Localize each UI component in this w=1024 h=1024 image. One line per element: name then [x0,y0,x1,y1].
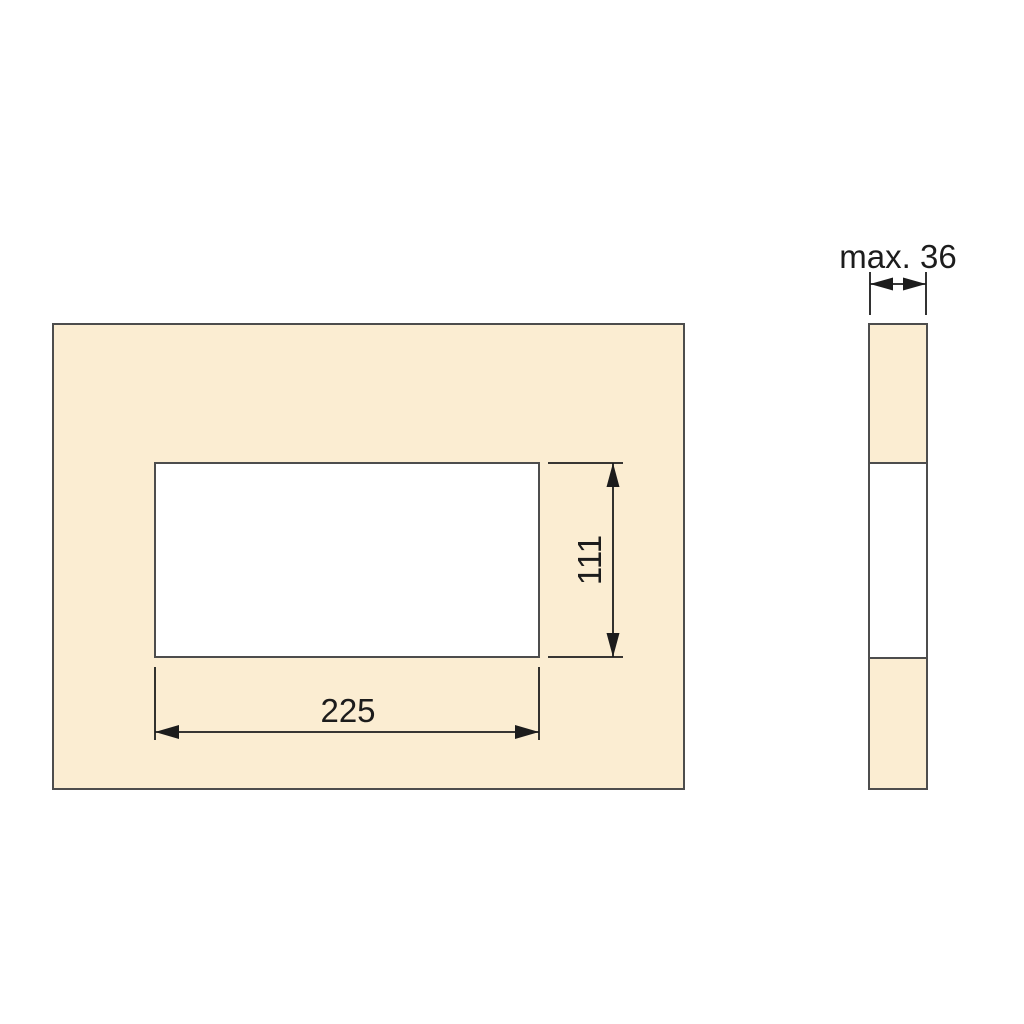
front-panel-cutout [155,463,539,657]
thickness-dimension-label: max. 36 [839,238,956,275]
arrow-right-small-icon [903,278,926,291]
dimension-drawing-svg: 225 111 max. 36 [0,0,1024,1024]
width-dimension-label: 225 [320,692,375,729]
side-panel-cutout-section [869,463,927,658]
arrow-left-small-icon [870,278,893,291]
height-dimension-label: 111 [571,535,608,585]
technical-drawing: 225 111 max. 36 [0,0,1024,1024]
thickness-dimension: max. 36 [839,238,956,315]
side-view [869,324,927,789]
